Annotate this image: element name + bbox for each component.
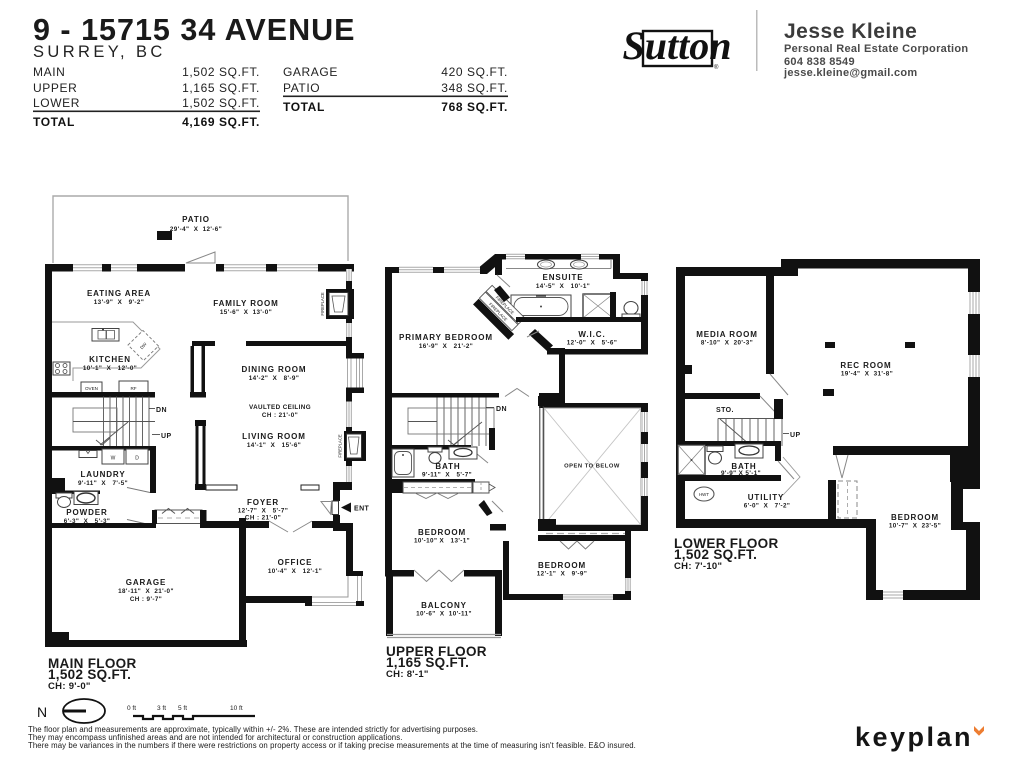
svg-text:LOWER: LOWER [33, 96, 80, 110]
svg-text:W.I.C.: W.I.C. [578, 330, 605, 339]
svg-text:LIVING ROOM: LIVING ROOM [242, 432, 306, 441]
svg-text:1,502 SQ.FT.: 1,502 SQ.FT. [182, 65, 260, 79]
svg-text:GARAGE: GARAGE [283, 65, 338, 79]
svg-text:MEDIA ROOM: MEDIA ROOM [696, 330, 758, 339]
svg-text:4,169 SQ.FT.: 4,169 SQ.FT. [182, 115, 260, 129]
svg-text:29'-4" X 12'-6": 29'-4" X 12'-6" [170, 226, 222, 233]
svg-text:RF: RF [130, 386, 136, 391]
svg-text:keyplan: keyplan [855, 722, 973, 752]
svg-text:13'-9" X 9'-2": 13'-9" X 9'-2" [94, 299, 144, 306]
svg-text:TOTAL: TOTAL [283, 100, 325, 114]
svg-text:9'-11" X 5'-7": 9'-11" X 5'-7" [422, 472, 472, 479]
svg-text:3 ft: 3 ft [157, 705, 166, 712]
svg-text:1,502 SQ.FT.: 1,502 SQ.FT. [48, 667, 131, 682]
svg-text:D: D [135, 456, 139, 462]
svg-text:DN: DN [156, 407, 167, 414]
svg-text:Personal Real Estate Corporati: Personal Real Estate Corporation [784, 43, 968, 55]
svg-text:18'-11" X 21'-0": 18'-11" X 21'-0" [118, 588, 174, 595]
svg-text:UTILITY: UTILITY [748, 493, 785, 502]
svg-text:BALCONY: BALCONY [421, 601, 467, 610]
svg-text:UPPER: UPPER [33, 81, 77, 95]
svg-text:REC ROOM: REC ROOM [840, 361, 891, 370]
svg-text:PATIO: PATIO [283, 81, 320, 95]
svg-text:5 ft: 5 ft [178, 705, 187, 712]
svg-text:19'-4" X 31'-8": 19'-4" X 31'-8" [841, 371, 893, 378]
svg-text:EATING AREA: EATING AREA [87, 289, 151, 298]
svg-text:BEDROOM: BEDROOM [538, 561, 586, 570]
svg-text:PATIO: PATIO [182, 215, 210, 224]
svg-text:SURREY, BC: SURREY, BC [33, 43, 166, 61]
svg-text:DINING ROOM: DINING ROOM [241, 365, 306, 374]
svg-text:CH: 8'-1": CH: 8'-1" [386, 669, 429, 680]
svg-text:PRIMARY BEDROOM: PRIMARY BEDROOM [399, 333, 493, 342]
svg-text:10'-4" X 12'-1": 10'-4" X 12'-1" [268, 568, 322, 575]
svg-text:N: N [37, 704, 47, 720]
svg-text:CH: 7'-10": CH: 7'-10" [674, 561, 722, 572]
svg-text:UP: UP [161, 433, 172, 440]
svg-text:FIREPLACE: FIREPLACE [338, 434, 343, 457]
svg-text:HWT: HWT [699, 492, 709, 497]
svg-text:8'-10" X 20'-3": 8'-10" X 20'-3" [701, 340, 753, 347]
svg-text:10'-1" X 12'-0": 10'-1" X 12'-0" [83, 365, 137, 372]
svg-text:10'-6" X 10'-11": 10'-6" X 10'-11" [416, 611, 472, 618]
svg-text:CH : 21'-0": CH : 21'-0" [262, 412, 298, 419]
svg-text:9'-11" X 7'-5": 9'-11" X 7'-5" [78, 480, 128, 487]
svg-text:FIREPLACE: FIREPLACE [320, 292, 325, 315]
svg-text:STO.: STO. [716, 407, 734, 414]
svg-text:LAUNDRY: LAUNDRY [80, 470, 125, 479]
svg-text:348 SQ.FT.: 348 SQ.FT. [441, 81, 508, 95]
svg-text:W: W [111, 456, 116, 462]
svg-text:KITCHEN: KITCHEN [89, 355, 131, 364]
svg-text:16'-9" X 21'-2": 16'-9" X 21'-2" [419, 343, 473, 350]
svg-text:1,165 SQ.FT.: 1,165 SQ.FT. [386, 655, 469, 670]
svg-text:768 SQ.FT.: 768 SQ.FT. [441, 100, 508, 114]
svg-text:BEDROOM: BEDROOM [891, 513, 939, 522]
svg-text:FAMILY ROOM: FAMILY ROOM [213, 299, 278, 308]
svg-text:ENT: ENT [354, 506, 370, 513]
svg-text:CH: 9'-0": CH: 9'-0" [48, 681, 91, 692]
svg-text:ENSUITE: ENSUITE [543, 273, 584, 282]
svg-text:®: ® [714, 64, 719, 71]
svg-text:Jesse Kleine: Jesse Kleine [784, 20, 917, 43]
svg-text:420 SQ.FT.: 420 SQ.FT. [441, 65, 508, 79]
svg-text:10'-7" X 23'-5": 10'-7" X 23'-5" [889, 523, 941, 530]
svg-text:12'-7" X 5'-7": 12'-7" X 5'-7" [238, 508, 288, 515]
svg-text:1,165 SQ.FT.: 1,165 SQ.FT. [182, 81, 260, 95]
svg-text:BEDROOM: BEDROOM [418, 528, 466, 537]
svg-text:OPEN TO BELOW: OPEN TO BELOW [564, 464, 620, 470]
svg-text:10 ft: 10 ft [230, 705, 243, 712]
svg-text:14'-1" X 15'-6": 14'-1" X 15'-6" [247, 442, 301, 449]
svg-text:CH : 9'-7": CH : 9'-7" [130, 596, 162, 603]
svg-text:BATH: BATH [435, 462, 460, 471]
svg-text:1,502 SQ.FT.: 1,502 SQ.FT. [674, 547, 757, 562]
svg-text:UP: UP [790, 432, 801, 439]
svg-text:CH : 21'-0": CH : 21'-0" [245, 515, 281, 522]
svg-text:jesse.kleine@gmail.com: jesse.kleine@gmail.com [783, 67, 918, 79]
svg-text:9 - 15715 34 AVENUE: 9 - 15715 34 AVENUE [33, 13, 355, 47]
svg-text:14'-2" X 8'-9": 14'-2" X 8'-9" [249, 375, 299, 382]
svg-text:OFFICE: OFFICE [278, 558, 313, 567]
svg-text:15'-6" X 13'-0": 15'-6" X 13'-0" [220, 309, 272, 316]
svg-text:12'-1" X 9'-9": 12'-1" X 9'-9" [537, 571, 587, 578]
svg-text:MAIN: MAIN [33, 65, 65, 79]
svg-text:FOYER: FOYER [247, 498, 279, 507]
svg-text:POWDER: POWDER [66, 508, 107, 517]
svg-text:OVEN: OVEN [85, 386, 98, 391]
svg-text:14'-5" X 10'-1": 14'-5" X 10'-1" [536, 283, 590, 290]
svg-text:10'-10" X 13'-1": 10'-10" X 13'-1" [414, 538, 470, 545]
svg-text:DN: DN [496, 406, 507, 413]
svg-text:0 ft: 0 ft [127, 705, 136, 712]
svg-text:6'-0" X 7'-2": 6'-0" X 7'-2" [744, 503, 791, 510]
svg-text:GARAGE: GARAGE [126, 578, 167, 587]
svg-text:VAULTED CEILING: VAULTED CEILING [249, 404, 311, 411]
svg-text:1,502 SQ.FT.: 1,502 SQ.FT. [182, 96, 260, 110]
svg-text:TOTAL: TOTAL [33, 115, 75, 129]
svg-text:Sutton: Sutton [623, 23, 732, 68]
svg-text:There may be variances in the: There may be variances in the numbers if… [28, 741, 636, 750]
svg-text:12'-0" X 5'-6": 12'-0" X 5'-6" [567, 340, 617, 347]
